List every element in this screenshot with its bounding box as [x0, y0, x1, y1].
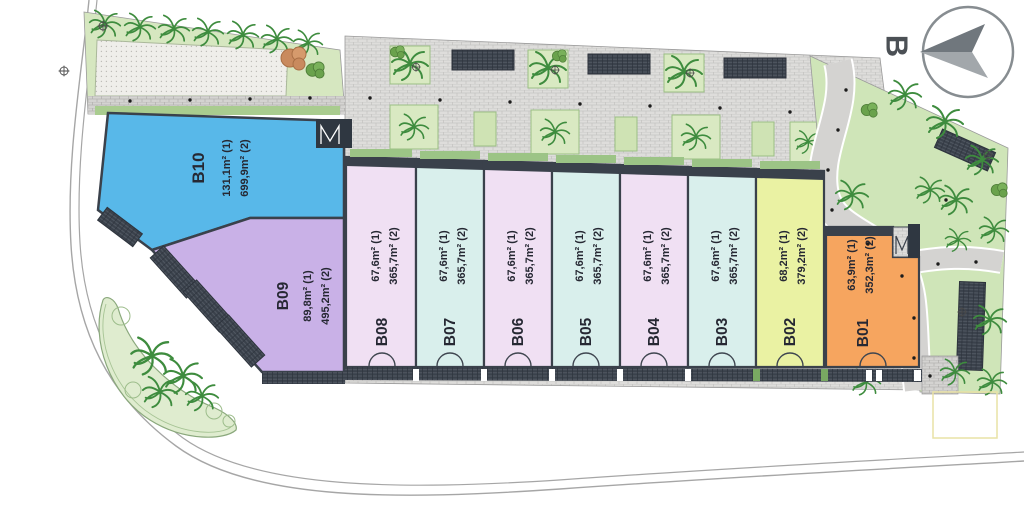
- unit-b02: 68,2m² (1) 379,2m² (2) B02: [756, 161, 824, 367]
- unit-b08: 67,6m² (1) 365,7m² (2) B08: [346, 149, 416, 367]
- unit-b03: 67,6m² (1) 365,7m² (2) B03: [688, 159, 756, 367]
- unit-b01-area1: 63,9m² (1): [846, 239, 858, 291]
- unit-b04: 67,6m² (1) 365,7m² (2) B04: [620, 157, 688, 367]
- unit-b03-area1: 67,6m² (1): [710, 230, 722, 282]
- unit-b10-label: B10: [189, 152, 208, 183]
- unit-b07-area2: 365,7m² (2): [456, 227, 468, 285]
- unit-b01-label: B01: [855, 318, 872, 347]
- unit-b01: 63,9m² (1) 352,3m² (2) B01: [826, 224, 920, 367]
- utility-outline: [933, 392, 997, 438]
- compass-label: B: [880, 35, 915, 57]
- unit-b02-label: B02: [782, 318, 799, 346]
- unit-b07-label: B07: [442, 318, 459, 346]
- unit-b05-area2: 365,7m² (2): [592, 227, 604, 285]
- unit-b05-area1: 67,6m² (1): [574, 230, 586, 282]
- unit-b01-area2: 352,3m² (2): [864, 236, 876, 294]
- unit-b06: 67,6m² (1) 365,7m² (2) B06: [484, 153, 552, 367]
- unit-b08-area2: 365,7m² (2): [388, 227, 400, 285]
- unit-b06-area2: 365,7m² (2): [524, 227, 536, 285]
- top-left-landscaping: [84, 10, 345, 115]
- unit-b05: 67,6m² (1) 365,7m² (2) B05: [552, 155, 620, 367]
- unit-b03-area2: 365,7m² (2): [728, 227, 740, 285]
- unit-b09-label: B09: [275, 281, 292, 310]
- unit-b06-area1: 67,6m² (1): [506, 230, 518, 282]
- unit-b07: 67,6m² (1) 365,7m² (2) B07: [416, 151, 484, 367]
- unit-b05-label: B05: [578, 317, 595, 346]
- unit-b06-label: B06: [510, 317, 527, 346]
- site-plan: B10 131,1m² (1) 699,9m² (2) B09 89,8m² (…: [0, 0, 1024, 512]
- unit-b02-area2: 379,2m² (2): [796, 227, 808, 285]
- unit-b10-area1: 131,1m² (1): [221, 139, 233, 197]
- unit-b07-area1: 67,6m² (1): [438, 230, 450, 282]
- unit-b03-label: B03: [714, 317, 731, 346]
- site-plan-drawing: B10 131,1m² (1) 699,9m² (2) B09 89,8m² (…: [0, 0, 1024, 512]
- unit-b04-area1: 67,6m² (1): [642, 230, 654, 282]
- unit-b09-area1: 89,8m² (1): [302, 270, 314, 322]
- unit-b08-area1: 67,6m² (1): [370, 230, 382, 282]
- unit-b02-area1: 68,2m² (1): [778, 230, 790, 282]
- unit-b04-area2: 365,7m² (2): [660, 227, 672, 285]
- unit-b10-area2: 699,9m² (2): [239, 139, 251, 197]
- unit-b08-label: B08: [374, 317, 391, 346]
- unit-b04-label: B04: [646, 317, 663, 346]
- unit-b09-area2: 495,2m² (2): [320, 267, 332, 325]
